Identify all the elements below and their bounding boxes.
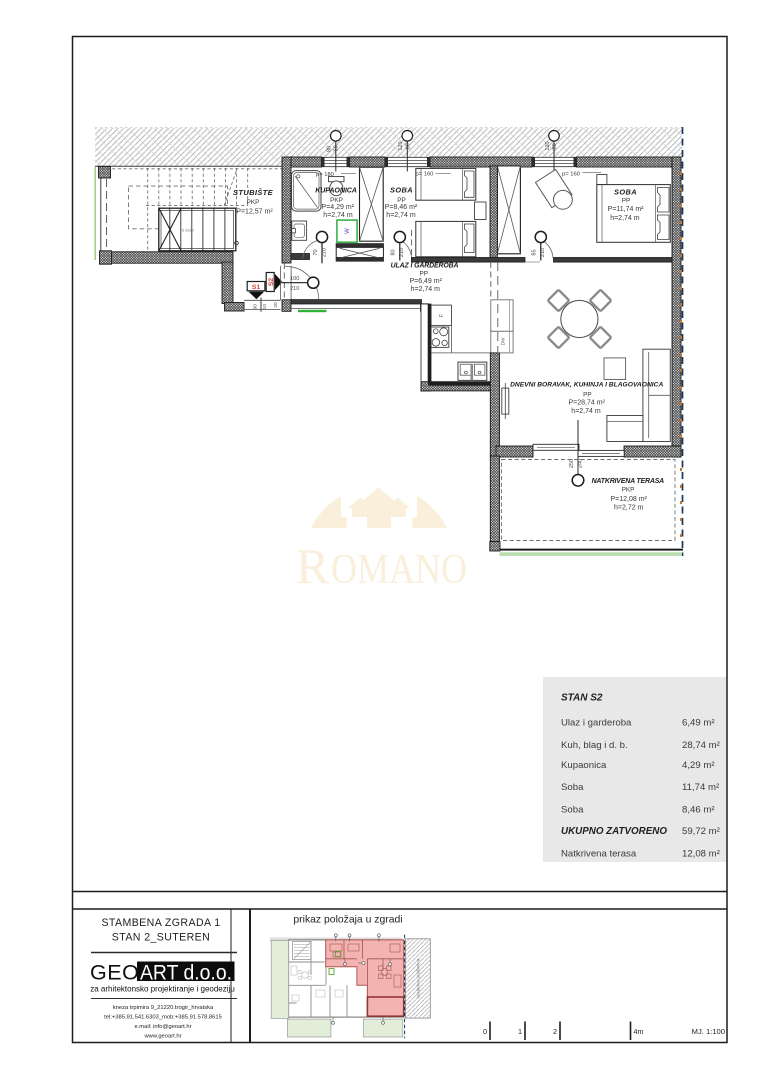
svg-text:6,49 m²: 6,49 m² [682,718,715,729]
svg-text:80: 80 [552,143,558,149]
svg-text:h=2,74 m: h=2,74 m [571,408,601,415]
svg-text:STAN 2_SUTEREN: STAN 2_SUTEREN [112,932,210,944]
svg-text:1: 1 [518,1027,522,1036]
svg-text:Kuh, blag i d. b.: Kuh, blag i d. b. [561,740,628,751]
svg-text:p= 160: p= 160 [416,172,434,178]
svg-text:p= 180: p= 180 [316,172,334,178]
svg-text:8,46 m²: 8,46 m² [682,805,715,816]
svg-text:210: 210 [399,248,405,257]
svg-text:tel:+385.91.541.6303_mob:+385.: tel:+385.91.541.6303_mob:+385.91.578.861… [104,1015,222,1021]
svg-text:Natkrivena terasa: Natkrivena terasa [561,849,637,860]
svg-text:www.geoart.hr: www.geoart.hr [143,1034,181,1040]
svg-text:4,29 m²: 4,29 m² [682,760,715,771]
svg-text:OMANO: OMANO [331,547,467,593]
svg-text:za arhitektonsko projektiranje: za arhitektonsko projektiranje i geodezi… [90,985,235,994]
svg-text:210: 210 [540,248,546,257]
svg-text:ART d.o.o.: ART d.o.o. [140,961,232,985]
svg-text:STUBIŠTE: STUBIŠTE [233,188,274,197]
svg-text:PKP: PKP [622,486,635,493]
svg-text:h=2,74 m: h=2,74 m [411,286,441,293]
svg-text:0: 0 [483,1027,487,1036]
svg-text:susjedna građevina: susjedna građevina [415,958,420,998]
svg-text:100: 100 [290,276,299,282]
svg-text:h=2,74 m: h=2,74 m [323,212,353,219]
svg-text:KUPAONICA: KUPAONICA [315,187,357,195]
svg-text:PKP: PKP [247,199,260,206]
svg-text:80: 80 [327,146,333,152]
svg-text:120: 120 [398,141,404,150]
svg-text:DNEVNI BORAVAK, KUHINJA I BLAG: DNEVNI BORAVAK, KUHINJA I BLAGOVAONICA [510,381,663,388]
svg-text:STAN S2: STAN S2 [561,693,603,704]
svg-text:90: 90 [253,304,259,310]
svg-text:210: 210 [321,248,327,257]
svg-text:PKP: PKP [330,197,343,204]
svg-text:11,74 m²: 11,74 m² [682,782,720,793]
svg-text:p= 160: p= 160 [562,171,580,177]
svg-text:h=2,74 m: h=2,74 m [610,215,640,222]
svg-text:28,74 m²: 28,74 m² [682,740,721,751]
svg-text:NATKRIVENA TERASA: NATKRIVENA TERASA [592,478,665,485]
svg-text:DW: DW [501,337,506,345]
svg-text:240: 240 [578,459,584,468]
svg-text:P=11,74 m²: P=11,74 m² [608,206,645,213]
svg-text:P=6,49 m²: P=6,49 m² [409,278,442,285]
svg-text:h=2,72 m: h=2,72 m [614,505,644,512]
svg-text:Soba: Soba [561,782,584,793]
svg-text:PP: PP [420,271,429,278]
svg-text:kneza trpimira 9_21220.trogir_: kneza trpimira 9_21220.trogir_hrvatska [113,1005,214,1011]
svg-text:250: 250 [569,459,575,468]
svg-text:STAMBENA ZGRADA 1: STAMBENA ZGRADA 1 [101,917,220,929]
svg-text:P=4,29 m²: P=4,29 m² [322,204,355,211]
svg-text:PP: PP [397,197,406,204]
svg-text:GEO: GEO [90,961,139,985]
svg-text:P=28,74 m²: P=28,74 m² [569,400,606,407]
svg-text:80: 80 [405,143,411,149]
svg-text:Ulaz i garderoba: Ulaz i garderoba [561,718,632,729]
svg-text:MJ. 1:100: MJ. 1:100 [692,1027,725,1036]
svg-text:P=8,46 m²: P=8,46 m² [385,204,418,211]
svg-text:20: 20 [273,302,279,308]
svg-text:59,72 m²: 59,72 m² [682,826,721,837]
svg-text:UKUPNO ZATVORENO: UKUPNO ZATVORENO [561,826,667,837]
svg-text:SOBA: SOBA [390,186,413,195]
svg-text:P=12,57 m²: P=12,57 m² [236,209,273,216]
svg-text:PP: PP [583,391,592,398]
svg-text:Kupaonica: Kupaonica [561,760,607,771]
svg-text:12,08 m²: 12,08 m² [682,849,721,860]
svg-text:e.mail: info@geoart.hr: e.mail: info@geoart.hr [134,1024,191,1030]
svg-text:PP: PP [622,197,631,204]
svg-text:S2: S2 [268,278,275,287]
svg-text:Soba: Soba [561,805,584,816]
svg-text:prikaz položaja u zgradi: prikaz položaja u zgradi [293,915,402,926]
svg-text:F: F [439,314,445,317]
svg-text:ULAZ I GARDEROBA: ULAZ I GARDEROBA [391,263,459,270]
svg-text:4m: 4m [634,1027,644,1036]
svg-text:SOBA: SOBA [614,187,637,196]
svg-text:W: W [345,228,351,234]
svg-text:10: 10 [262,304,268,310]
svg-text:S1: S1 [252,284,261,291]
svg-text:76 33dm: 76 33dm [180,229,194,233]
svg-text:h=2,74 m: h=2,74 m [386,212,416,219]
svg-text:P=12,08 m²: P=12,08 m² [611,496,648,503]
svg-text:70: 70 [313,249,319,255]
svg-text:120: 120 [545,141,551,150]
svg-text:60: 60 [334,145,340,151]
svg-text:85: 85 [532,249,538,255]
svg-text:210: 210 [290,286,299,292]
svg-text:R: R [296,538,330,594]
svg-text:2: 2 [553,1027,557,1036]
svg-text:80: 80 [391,249,397,255]
